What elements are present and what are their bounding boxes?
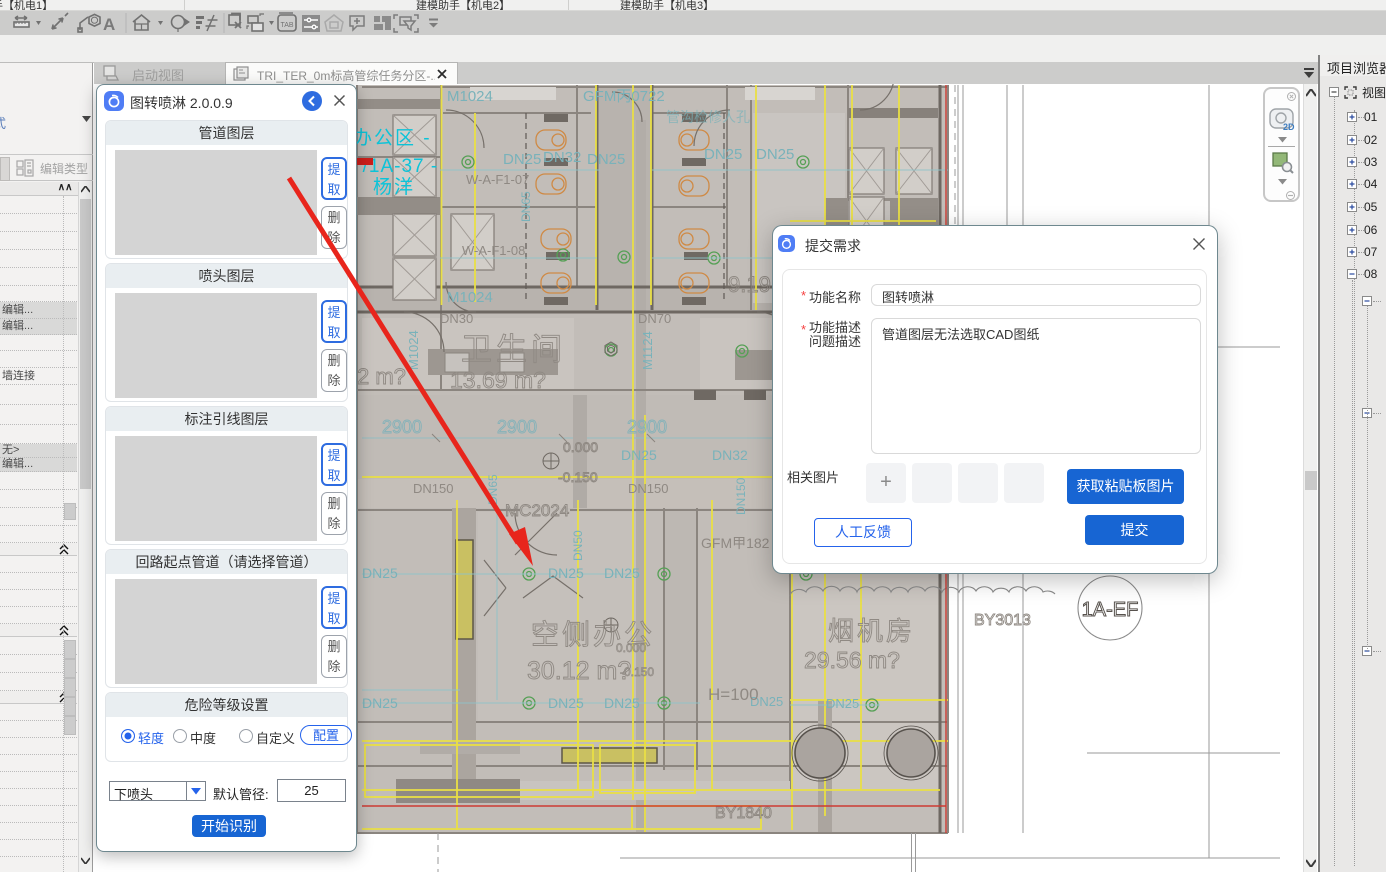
svg-text:DN70: DN70 (638, 311, 671, 326)
svg-text:BY1840: BY1840 (715, 805, 772, 822)
svg-text:DN25: DN25 (604, 695, 640, 711)
svg-text:2900: 2900 (627, 417, 667, 437)
svg-text:DN150: DN150 (628, 481, 668, 496)
svg-text:DN150: DN150 (734, 477, 748, 515)
svg-text:DN25: DN25 (548, 695, 584, 711)
svg-text:2 m?: 2 m? (357, 364, 406, 389)
svg-text:H=100: H=100 (708, 685, 759, 704)
svg-text:DN25: DN25 (362, 565, 398, 581)
svg-text:W-A-F1-08: W-A-F1-08 (462, 243, 525, 258)
svg-text:DN32: DN32 (543, 149, 581, 166)
svg-text:DN25: DN25 (704, 146, 742, 163)
svg-text:-0.150: -0.150 (620, 665, 654, 679)
svg-text:M1024: M1024 (406, 330, 421, 370)
svg-text:DN50: DN50 (571, 530, 585, 561)
svg-text:DN25: DN25 (362, 695, 398, 711)
svg-text:MC2024: MC2024 (505, 501, 569, 520)
svg-text:M1024: M1024 (447, 289, 493, 306)
svg-text:卫生间: 卫生间 (461, 332, 566, 367)
svg-text:30.12 m?: 30.12 m? (527, 657, 631, 685)
svg-text:DN25: DN25 (756, 146, 794, 163)
svg-text:M1124: M1124 (640, 331, 655, 370)
svg-text:DN25: DN25 (621, 447, 657, 463)
svg-text:GFM甲182: GFM甲182 (701, 535, 770, 551)
svg-text:管沟检修人孔: 管沟检修人孔 (666, 109, 750, 125)
svg-text:13.69 m?: 13.69 m? (450, 367, 546, 393)
svg-text:DN25: DN25 (826, 696, 859, 711)
svg-text:W-A-F1-07: W-A-F1-07 (466, 172, 529, 187)
svg-text:DN65: DN65 (486, 474, 500, 505)
svg-text:2D: 2D (1283, 122, 1295, 132)
svg-text:-0.150: -0.150 (558, 469, 598, 485)
svg-text:2900: 2900 (382, 417, 422, 437)
svg-text:0.000: 0.000 (616, 641, 646, 655)
svg-text:29.56 m?: 29.56 m? (804, 647, 900, 673)
svg-text:杨洋: 杨洋 (373, 176, 415, 198)
svg-text:DN25: DN25 (503, 151, 541, 168)
svg-text:DN32: DN32 (712, 447, 748, 463)
svg-text:办公区 -: 办公区 - (353, 127, 432, 149)
svg-text:GFM丙0722: GFM丙0722 (583, 88, 665, 105)
svg-text:DN25: DN25 (604, 565, 640, 581)
svg-text:DN25: DN25 (548, 565, 584, 581)
svg-text:1A-EF: 1A-EF (1082, 599, 1139, 621)
svg-text:BY3013: BY3013 (974, 612, 1031, 629)
svg-text:DN65: DN65 (519, 191, 533, 222)
svg-text:M1024: M1024 (447, 88, 493, 105)
svg-text:DN30: DN30 (440, 311, 473, 326)
svg-text:2900: 2900 (497, 417, 537, 437)
svg-text:DN150: DN150 (413, 481, 453, 496)
svg-text:DN25: DN25 (587, 151, 625, 168)
svg-text:TAB: TAB (281, 22, 294, 29)
svg-text:烟机房: 烟机房 (828, 616, 915, 646)
svg-text:A: A (103, 15, 115, 34)
svg-text:9.19: 9.19 (728, 272, 771, 297)
svg-text:0.000: 0.000 (563, 439, 598, 455)
